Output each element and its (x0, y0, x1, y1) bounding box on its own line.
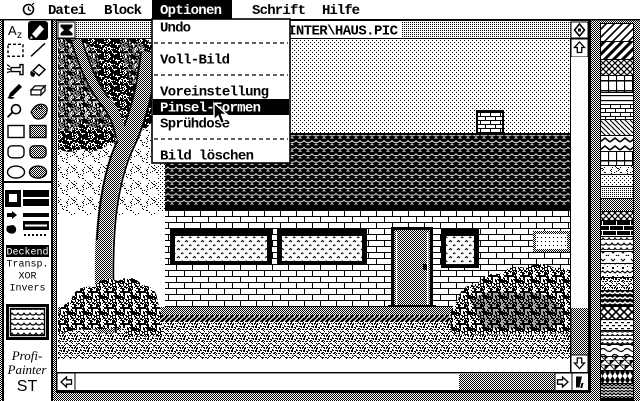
svg-text:Invers: Invers (9, 284, 45, 295)
svg-text:Undo: Undo (160, 21, 191, 37)
svg-text:ST: ST (17, 378, 38, 395)
svg-text:Block: Block (104, 3, 142, 19)
svg-text:Schrift: Schrift (252, 3, 306, 19)
svg-text:Datei: Datei (48, 3, 86, 19)
svg-text:A: A (8, 23, 17, 38)
svg-text:Voreinstellung: Voreinstellung (160, 85, 269, 101)
svg-text:Voll-Bild: Voll-Bild (160, 53, 230, 69)
svg-text:Hilfe: Hilfe (322, 3, 360, 19)
svg-text:INTER\HAUS.PIC: INTER\HAUS.PIC (288, 24, 399, 40)
svg-text:Transp.: Transp. (6, 260, 48, 271)
svg-text:XOR: XOR (18, 272, 36, 283)
svg-text:Profi-: Profi- (11, 348, 43, 363)
svg-text:Pinsel-Formen: Pinsel-Formen (160, 101, 261, 117)
svg-text:Bild löschen: Bild löschen (160, 149, 254, 165)
svg-text:Deckend: Deckend (6, 247, 48, 259)
svg-text:Optionen: Optionen (160, 3, 222, 19)
svg-text:Painter: Painter (7, 362, 48, 377)
svg-text:z: z (17, 30, 22, 41)
